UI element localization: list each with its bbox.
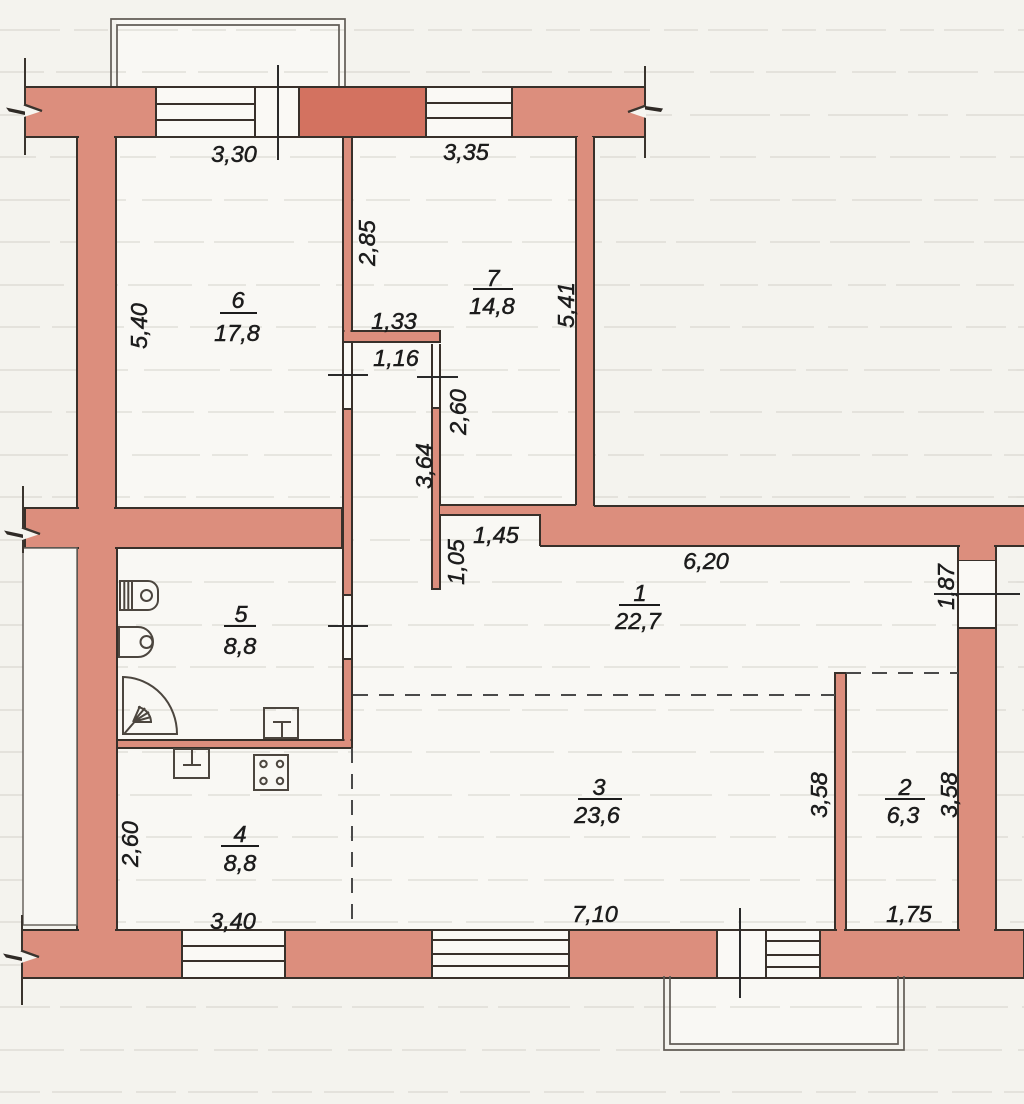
svg-text:1,45: 1,45 bbox=[473, 522, 520, 548]
svg-text:3,35: 3,35 bbox=[443, 139, 490, 165]
svg-text:3,58: 3,58 bbox=[806, 772, 832, 818]
svg-text:8,8: 8,8 bbox=[224, 850, 257, 876]
svg-text:3,64: 3,64 bbox=[411, 443, 437, 489]
svg-text:23,6: 23,6 bbox=[573, 802, 621, 828]
svg-text:3,58: 3,58 bbox=[936, 772, 962, 818]
svg-text:8,8: 8,8 bbox=[224, 633, 257, 659]
svg-text:6,3: 6,3 bbox=[887, 802, 920, 828]
svg-text:1,16: 1,16 bbox=[373, 345, 420, 371]
svg-text:7: 7 bbox=[486, 265, 500, 291]
svg-text:5: 5 bbox=[234, 601, 248, 627]
svg-text:3,30: 3,30 bbox=[211, 141, 257, 167]
svg-text:14,8: 14,8 bbox=[469, 293, 515, 319]
svg-text:1,05: 1,05 bbox=[443, 538, 469, 585]
svg-text:6: 6 bbox=[231, 287, 245, 313]
svg-text:4: 4 bbox=[233, 821, 246, 847]
svg-text:2,60: 2,60 bbox=[117, 821, 143, 868]
svg-text:2,60: 2,60 bbox=[445, 389, 471, 436]
svg-text:6,20: 6,20 bbox=[683, 548, 729, 574]
svg-text:22,7: 22,7 bbox=[614, 608, 662, 634]
svg-text:2,85: 2,85 bbox=[354, 219, 380, 267]
svg-text:17,8: 17,8 bbox=[214, 320, 260, 346]
svg-text:7,10: 7,10 bbox=[572, 901, 618, 927]
svg-text:1,75: 1,75 bbox=[886, 901, 933, 927]
svg-text:2: 2 bbox=[897, 774, 911, 800]
svg-text:1: 1 bbox=[633, 580, 646, 606]
svg-text:5,41: 5,41 bbox=[553, 282, 579, 328]
svg-text:1,33: 1,33 bbox=[371, 308, 417, 334]
svg-text:3: 3 bbox=[592, 774, 605, 800]
svg-text:3,40: 3,40 bbox=[210, 908, 256, 934]
svg-text:5,40: 5,40 bbox=[126, 303, 152, 349]
svg-text:1,87: 1,87 bbox=[933, 563, 959, 610]
